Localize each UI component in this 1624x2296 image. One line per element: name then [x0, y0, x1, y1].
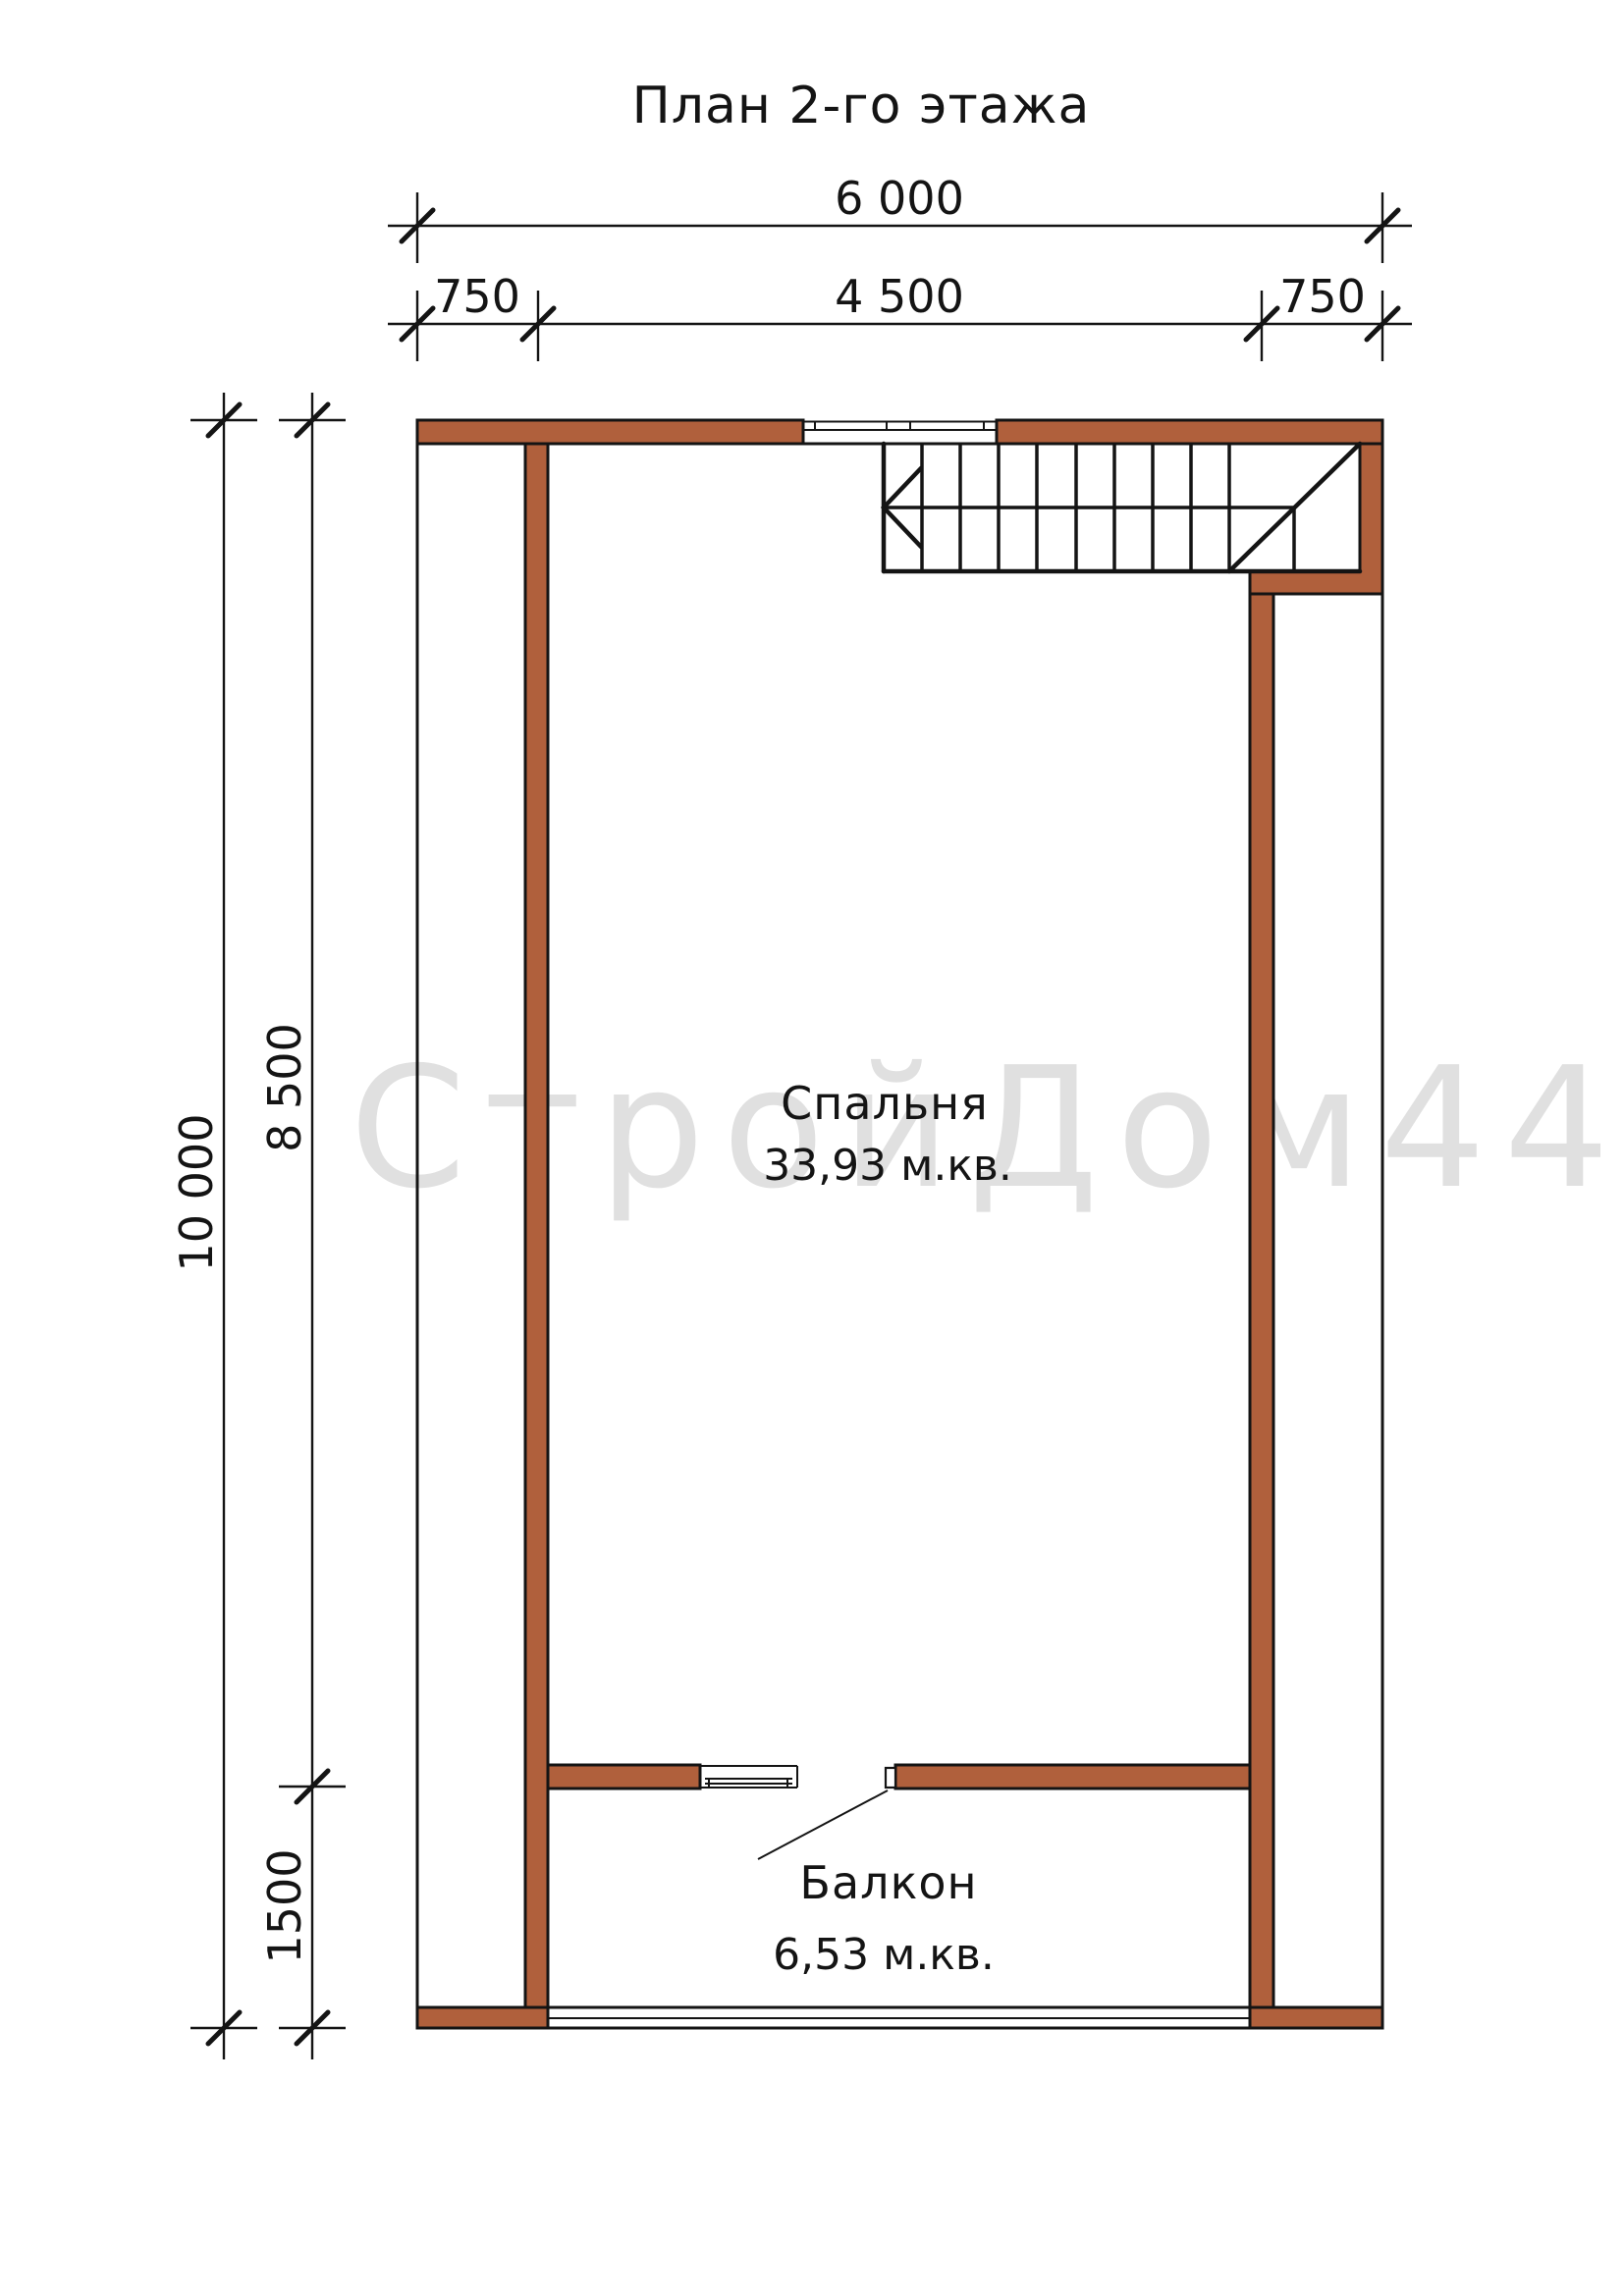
bottom-left-corner-block	[417, 2007, 548, 2028]
room-name: Балкон	[799, 1856, 977, 1909]
dimension-label: 6 000	[835, 172, 964, 225]
dimension-label: 750	[1279, 270, 1366, 323]
dimension-label: 4 500	[835, 270, 964, 323]
balcony-wall-right-segment	[895, 1765, 1250, 1789]
door-jamb	[886, 1768, 895, 1788]
dimension-label: 10 000	[170, 1114, 223, 1272]
room-area: 33,93 м.кв.	[763, 1141, 1012, 1191]
page-title: План 2-го этажа	[632, 77, 1091, 135]
left-interior-wall	[525, 444, 548, 2007]
balcony-wall-left-segment	[548, 1765, 700, 1789]
room-area: 6,53 м.кв.	[773, 1930, 995, 1980]
dimension-label: 750	[434, 270, 520, 323]
top-wall-left-segment	[417, 420, 803, 444]
dimension-label: 1500	[258, 1848, 311, 1963]
room-name: Спальня	[781, 1077, 989, 1130]
top-wall-right-segment	[997, 420, 1382, 444]
dimension-label: 8 500	[258, 1023, 311, 1152]
bottom-right-corner-block	[1250, 2007, 1382, 2028]
floor-plan-drawing: СтройДом44 План 2-го этажа	[0, 0, 1624, 2296]
right-interior-wall	[1250, 594, 1273, 2007]
